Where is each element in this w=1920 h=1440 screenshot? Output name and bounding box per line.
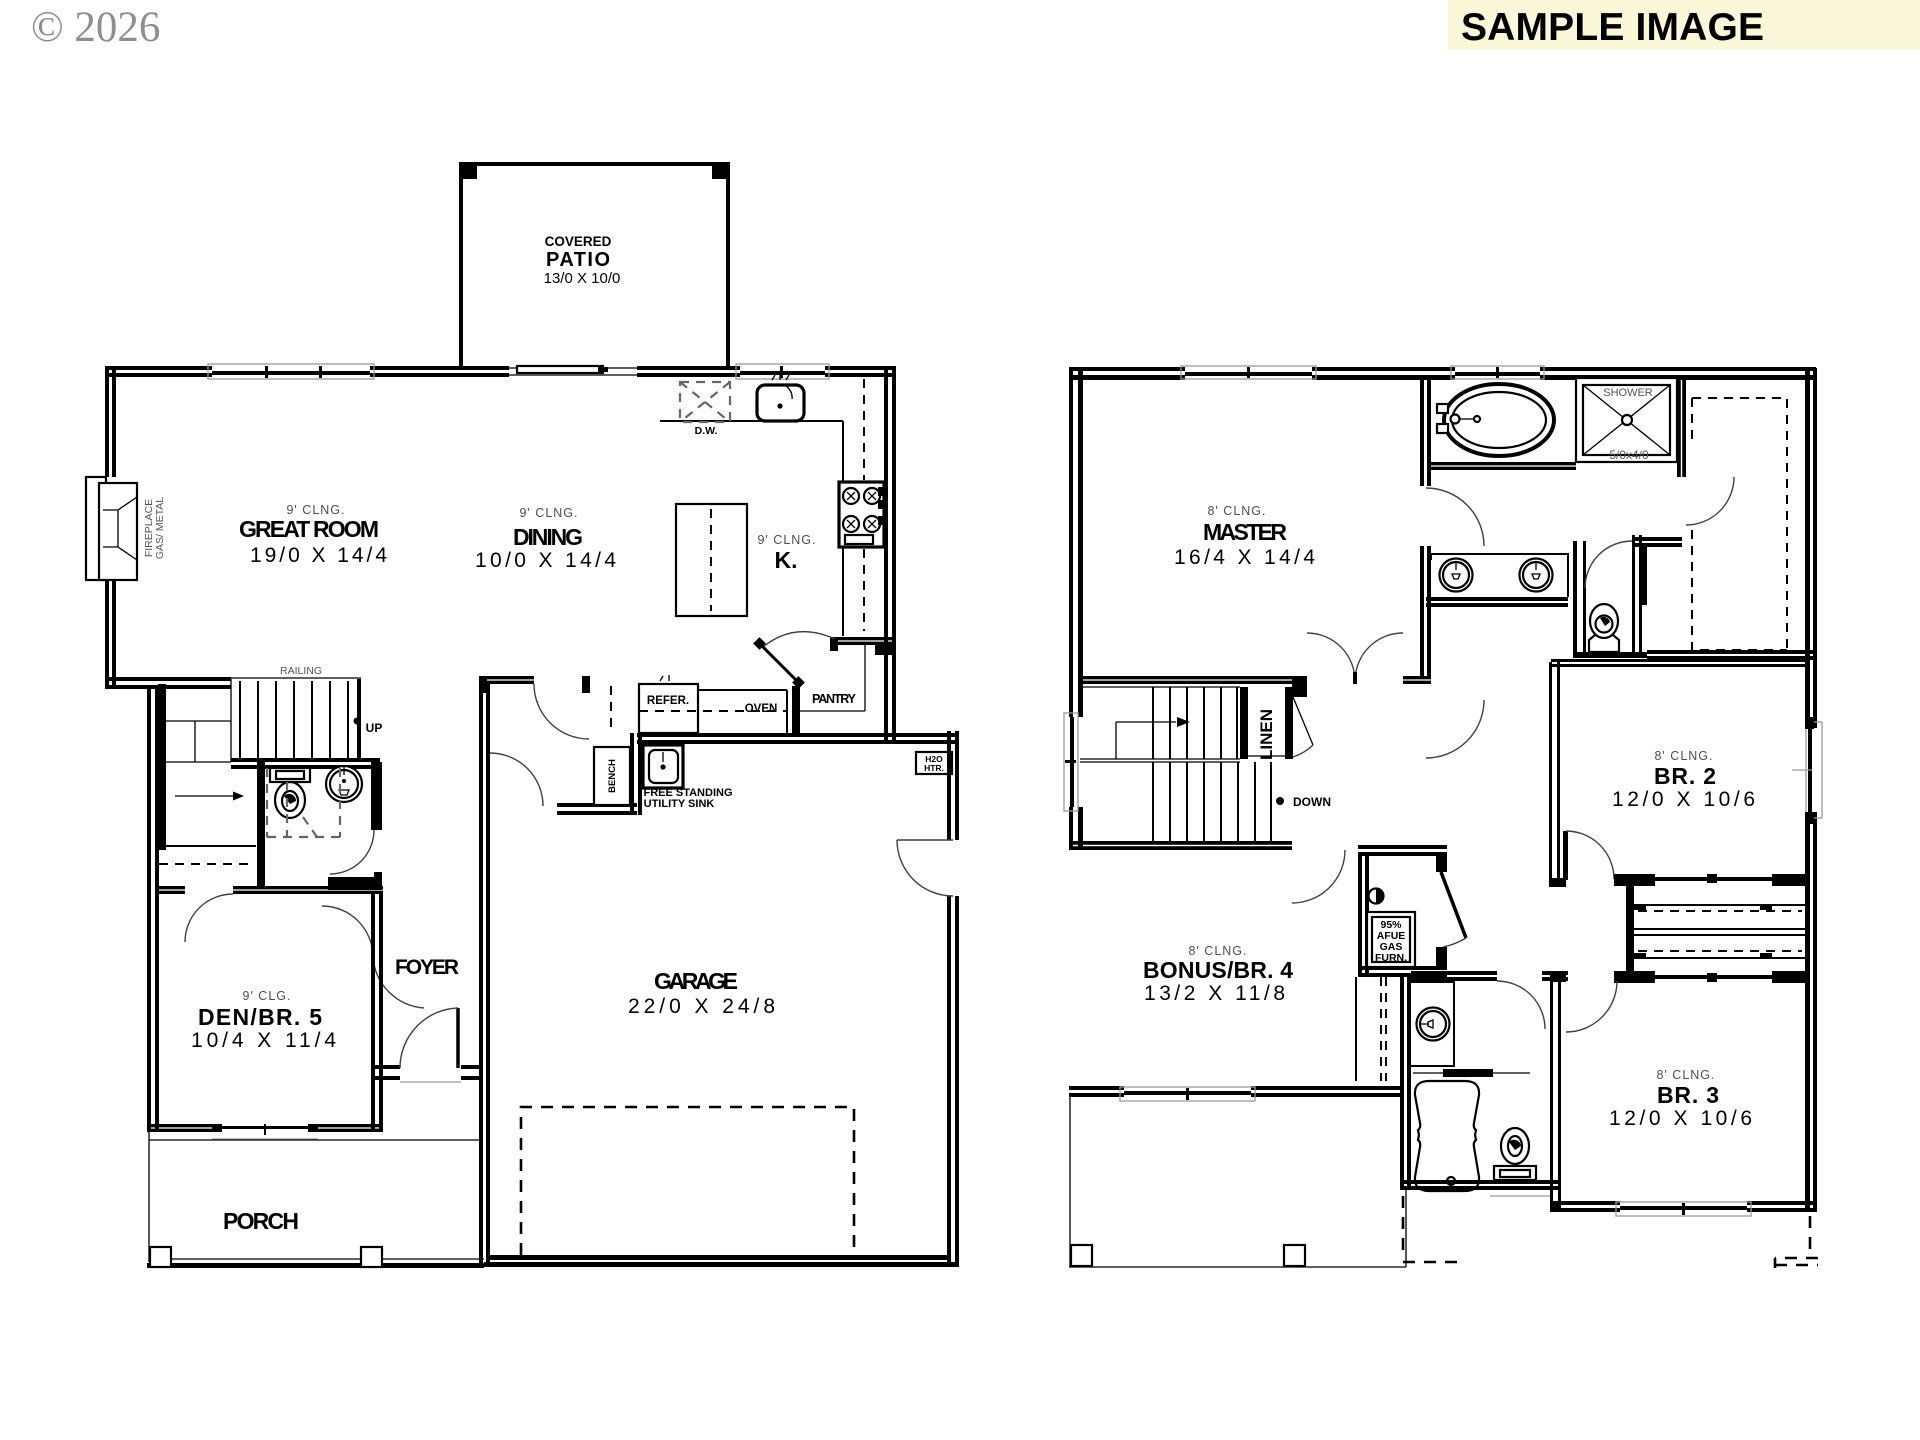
svg-text:GARAGE: GARAGE bbox=[654, 968, 738, 994]
svg-text:UTILITY SINK: UTILITY SINK bbox=[644, 798, 715, 810]
svg-text:13/0 X 10/0: 13/0 X 10/0 bbox=[544, 270, 621, 287]
svg-text:9' CLG.: 9' CLG. bbox=[243, 989, 292, 1003]
svg-text:GAS/ METAL: GAS/ METAL bbox=[154, 497, 166, 559]
svg-text:PORCH: PORCH bbox=[223, 1208, 299, 1234]
svg-text:SAMPLE IMAGE: SAMPLE IMAGE bbox=[1461, 6, 1764, 49]
svg-text:9' CLNG.: 9' CLNG. bbox=[519, 506, 578, 520]
svg-text:DOWN: DOWN bbox=[1293, 795, 1331, 809]
svg-text:BR. 3: BR. 3 bbox=[1657, 1082, 1719, 1108]
svg-text:13/2 X 11/8: 13/2 X 11/8 bbox=[1144, 982, 1286, 1005]
svg-text:16/4 X 14/4: 16/4 X 14/4 bbox=[1174, 546, 1316, 569]
svg-text:GREAT ROOM: GREAT ROOM bbox=[239, 516, 379, 542]
svg-text:© 2026: © 2026 bbox=[31, 4, 160, 51]
svg-text:10/0 X 14/4: 10/0 X 14/4 bbox=[475, 549, 617, 572]
svg-text:MASTER: MASTER bbox=[1203, 519, 1287, 545]
svg-text:FURN.: FURN. bbox=[1375, 952, 1407, 964]
svg-text:8' CLNG.: 8' CLNG. bbox=[1188, 944, 1247, 958]
svg-text:BR. 2: BR. 2 bbox=[1654, 763, 1716, 789]
svg-text:12/0 X 10/6: 12/0 X 10/6 bbox=[1612, 788, 1756, 811]
svg-text:PATIO: PATIO bbox=[546, 249, 610, 271]
svg-text:SHOWER: SHOWER bbox=[1603, 387, 1653, 399]
svg-text:HTR.: HTR. bbox=[924, 763, 944, 773]
svg-text:REFER.: REFER. bbox=[647, 695, 689, 707]
svg-text:19/0 X 14/4: 19/0 X 14/4 bbox=[250, 544, 388, 567]
svg-text:DINING: DINING bbox=[513, 524, 583, 550]
svg-text:BENCH: BENCH bbox=[607, 759, 618, 793]
svg-text:PANTRY: PANTRY bbox=[812, 692, 857, 706]
svg-text:BONUS/BR. 4: BONUS/BR. 4 bbox=[1143, 957, 1293, 983]
svg-text:12/0 X 10/6: 12/0 X 10/6 bbox=[1609, 1107, 1753, 1130]
svg-text:9' CLNG.: 9' CLNG. bbox=[286, 503, 345, 517]
svg-text:8' CLNG.: 8' CLNG. bbox=[1207, 504, 1266, 518]
svg-text:FOYER: FOYER bbox=[395, 956, 459, 979]
svg-text:8' CLNG.: 8' CLNG. bbox=[1656, 1068, 1715, 1082]
svg-text:10/4 X 11/4: 10/4 X 11/4 bbox=[191, 1029, 337, 1052]
svg-text:RAILING: RAILING bbox=[280, 665, 322, 677]
svg-text:K.: K. bbox=[775, 547, 798, 573]
svg-text:8' CLNG.: 8' CLNG. bbox=[1654, 749, 1713, 763]
svg-text:UP: UP bbox=[366, 721, 383, 735]
svg-text:22/0 X 24/8: 22/0 X 24/8 bbox=[628, 995, 776, 1018]
svg-text:5/0x4/0: 5/0x4/0 bbox=[1609, 448, 1649, 462]
svg-text:LINEN: LINEN bbox=[1257, 709, 1276, 760]
svg-text:D.W.: D.W. bbox=[695, 425, 718, 437]
svg-text:COVERED: COVERED bbox=[545, 234, 612, 249]
svg-text:DEN/BR. 5: DEN/BR. 5 bbox=[198, 1004, 322, 1030]
svg-text:OVEN: OVEN bbox=[745, 703, 778, 715]
svg-text:9' CLNG.: 9' CLNG. bbox=[757, 533, 816, 547]
